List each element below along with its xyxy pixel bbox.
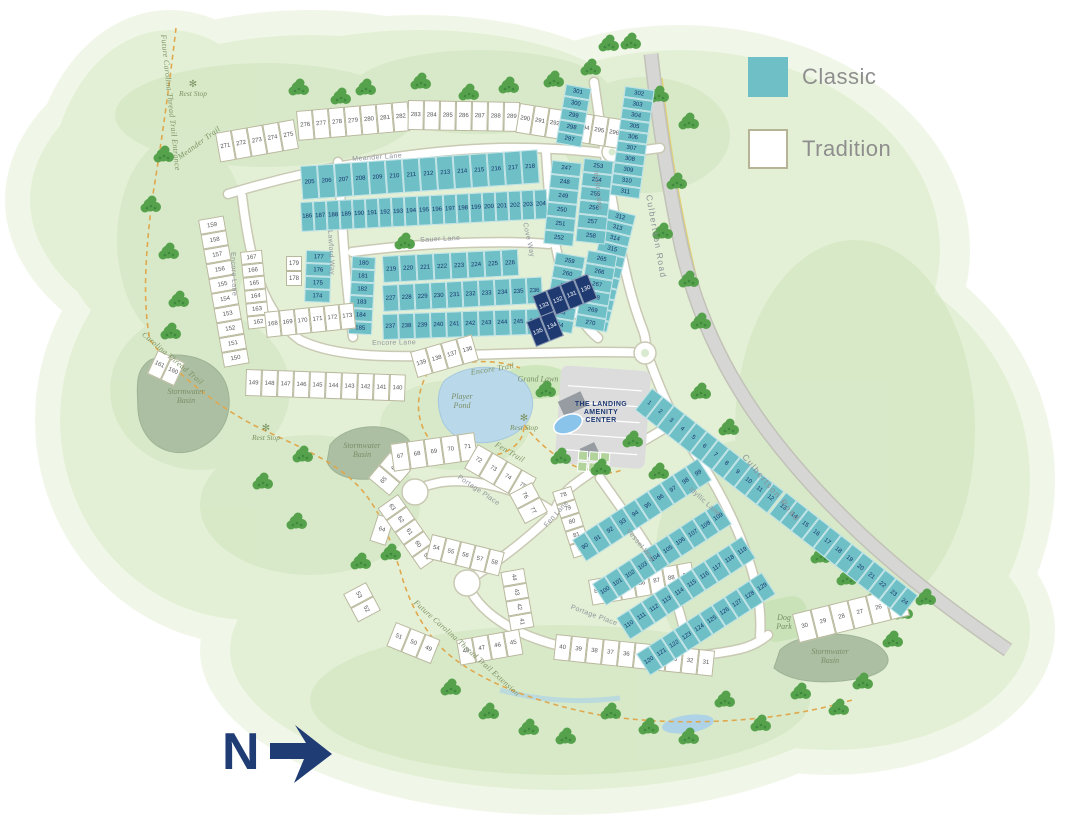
tradition-label: Tradition <box>802 136 891 162</box>
lot-234[interactable]: 234 <box>494 278 511 306</box>
lot-41[interactable]: 41 <box>508 612 534 631</box>
lot-288[interactable]: 288 <box>487 101 504 131</box>
lot-block-meander-row-2: 276277278279280281282 <box>296 101 410 141</box>
lot-218[interactable]: 218 <box>520 149 539 184</box>
north-indicator: N <box>222 712 346 792</box>
lot-144[interactable]: 144 <box>325 372 342 400</box>
lot-229[interactable]: 229 <box>414 282 431 310</box>
lot-182[interactable]: 182 <box>350 282 375 296</box>
lot-block-mid-fan: 5455565758 <box>426 534 505 576</box>
lot-285[interactable]: 285 <box>439 101 456 131</box>
lot-245[interactable]: 245 <box>510 309 527 336</box>
lot-239[interactable]: 239 <box>414 312 431 339</box>
lot-block-loop2-west: 5352 <box>343 582 381 622</box>
lot-286[interactable]: 286 <box>455 101 472 131</box>
lot-252[interactable]: 252 <box>543 230 574 247</box>
lot-228[interactable]: 228 <box>398 283 415 311</box>
lot-149[interactable]: 149 <box>245 369 262 397</box>
lot-222[interactable]: 222 <box>433 252 451 280</box>
lot-block-culbertson-col-1: 302303304305306307308309310311 <box>610 86 655 199</box>
lot-147[interactable]: 147 <box>277 370 294 398</box>
lot-178[interactable]: 178 <box>286 271 302 286</box>
lot-146[interactable]: 146 <box>293 371 310 399</box>
lot-232[interactable]: 232 <box>462 280 479 308</box>
north-arrow-icon <box>266 712 346 792</box>
lot-230[interactable]: 230 <box>430 282 447 310</box>
lot-150[interactable]: 150 <box>221 348 249 367</box>
lot-block-loop2-col: 44434241 <box>500 568 534 631</box>
lot-175[interactable]: 175 <box>305 276 331 290</box>
amenity-line-1: THE LANDING <box>575 401 627 409</box>
lot-142[interactable]: 142 <box>357 373 374 401</box>
lot-block-encore-outer-pair: 161160 <box>147 350 185 386</box>
amenity-center-label: THE LANDING AMENITY CENTER <box>575 401 627 425</box>
legend-item-classic: Classic <box>748 57 891 97</box>
amenity-line-2: AMENITY <box>575 409 627 417</box>
lot-173[interactable]: 173 <box>339 303 357 330</box>
lot-block-mid-lower-row-3: 237238239240241242243244245246 <box>382 308 543 340</box>
lot-258[interactable]: 258 <box>575 228 606 245</box>
lot-220[interactable]: 220 <box>399 254 417 282</box>
lot-block-encore-south-row: 149148147146145144143142141140 <box>245 369 406 402</box>
lot-block-encore-inner-row: 168169170171172173 <box>264 303 356 338</box>
lot-180[interactable]: 180 <box>351 256 376 270</box>
lot-block-meander-row-1: 271272273274275 <box>215 119 299 162</box>
lot-219[interactable]: 219 <box>382 255 400 283</box>
lot-243[interactable]: 243 <box>478 310 495 337</box>
lot-235[interactable]: 235 <box>510 277 527 305</box>
classic-label: Classic <box>802 64 876 90</box>
lot-283[interactable]: 283 <box>407 100 424 130</box>
lot-227[interactable]: 227 <box>382 284 399 312</box>
tradition-swatch <box>748 129 788 169</box>
lot-238[interactable]: 238 <box>398 313 415 340</box>
lot-45[interactable]: 45 <box>503 629 523 657</box>
lot-287[interactable]: 287 <box>471 101 488 131</box>
lot-241[interactable]: 241 <box>446 311 463 338</box>
lot-181[interactable]: 181 <box>351 269 376 283</box>
lot-244[interactable]: 244 <box>494 310 511 337</box>
lot-block-culbertson-strip-2: 131415161718192021222324 <box>769 492 919 617</box>
lot-284[interactable]: 284 <box>423 100 440 130</box>
lot-174[interactable]: 174 <box>304 289 330 303</box>
lot-block-pond-row: 139138137136 <box>410 334 479 378</box>
lot-224[interactable]: 224 <box>467 251 485 279</box>
lot-block-encore-teal-col: 177176175174 <box>304 250 332 303</box>
lot-237[interactable]: 237 <box>382 313 399 340</box>
lot-145[interactable]: 145 <box>309 371 326 399</box>
lot-blocks-layer: 2712722732742752762772782792802812822832… <box>0 0 1068 840</box>
lot-31[interactable]: 31 <box>696 649 715 677</box>
lot-143[interactable]: 143 <box>341 372 358 400</box>
legend-item-tradition: Tradition <box>748 129 891 169</box>
lot-225[interactable]: 225 <box>484 250 502 278</box>
lot-148[interactable]: 148 <box>261 370 278 398</box>
lot-176[interactable]: 176 <box>305 263 331 277</box>
lot-block-loop2-south: 515049 <box>386 622 440 664</box>
lot-177[interactable]: 177 <box>306 250 332 264</box>
lot-226[interactable]: 226 <box>501 249 519 277</box>
lot-block-meander-row-3: 283284285286287288289 <box>407 100 520 132</box>
lot-141[interactable]: 141 <box>373 373 390 401</box>
lot-221[interactable]: 221 <box>416 253 434 281</box>
north-label: N <box>222 722 260 782</box>
lot-140[interactable]: 140 <box>389 374 406 402</box>
legend: Classic Tradition <box>748 57 891 201</box>
amenity-line-3: CENTER <box>575 417 627 425</box>
lot-233[interactable]: 233 <box>478 279 495 307</box>
lot-block-encore-outer-col: 159158157156155154153152151150 <box>198 215 250 367</box>
site-plan-map: 2712722732742752762772782792802812822832… <box>0 0 1068 840</box>
lot-240[interactable]: 240 <box>430 312 447 339</box>
lot-block-loop2-east: 48474645 <box>456 629 524 666</box>
lot-179[interactable]: 179 <box>286 256 302 271</box>
lot-block-mid-lower-row-2: 227228229230231232233234235236 <box>382 277 543 312</box>
lot-block-encore-inner-pair: 179178 <box>286 256 302 286</box>
lot-242[interactable]: 242 <box>462 311 479 338</box>
lot-223[interactable]: 223 <box>450 252 468 280</box>
lot-231[interactable]: 231 <box>446 281 463 309</box>
classic-swatch <box>748 57 788 97</box>
